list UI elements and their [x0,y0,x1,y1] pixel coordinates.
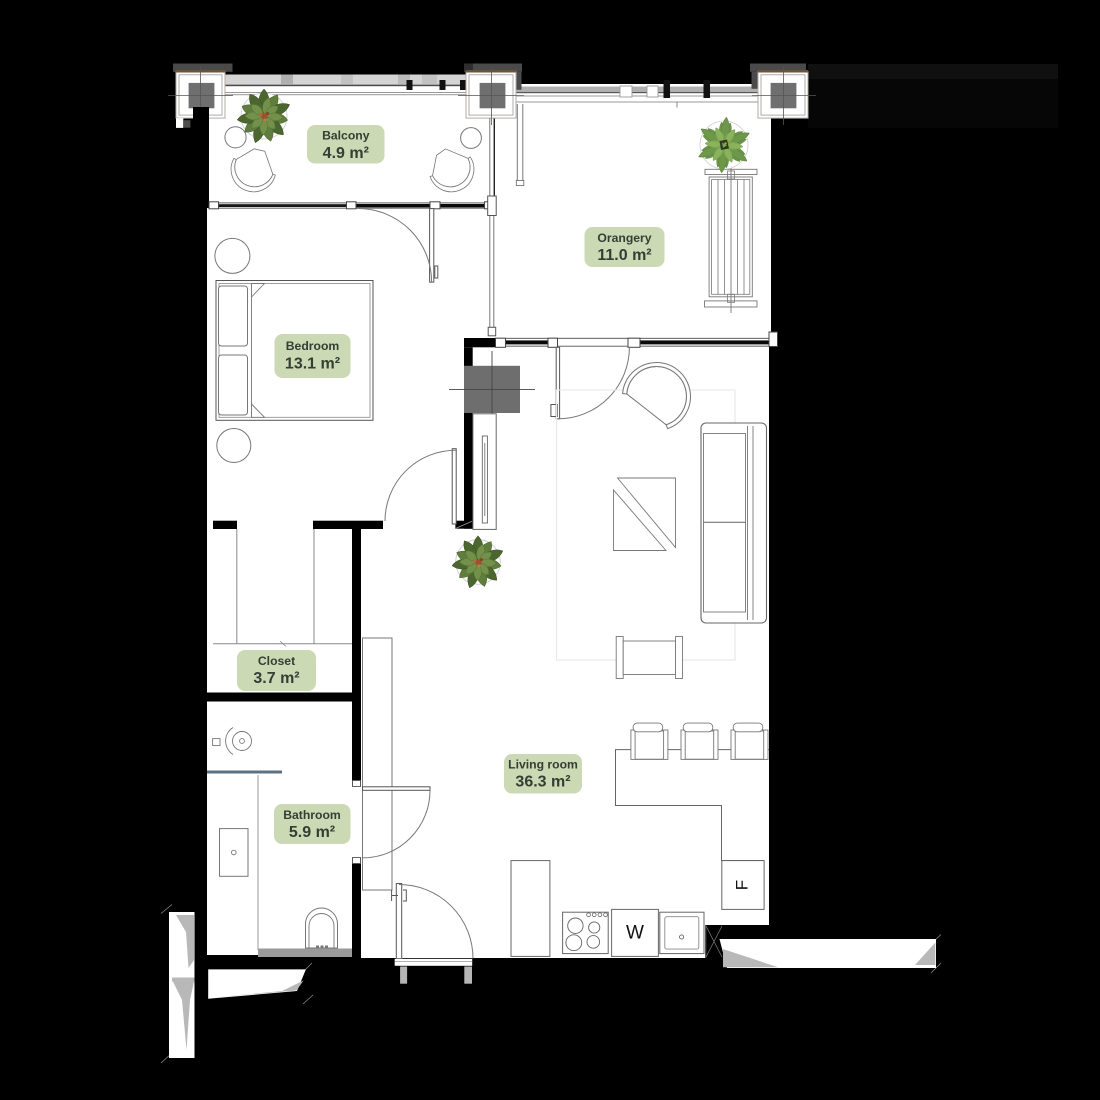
svg-text:36.3 m²: 36.3 m² [515,774,570,791]
svg-text:Bedroom: Bedroom [286,339,340,353]
svg-text:4.9 m²: 4.9 m² [323,145,369,162]
svg-text:Orangery: Orangery [597,231,651,245]
svg-text:11.0 m²: 11.0 m² [597,247,651,264]
svg-text:Balcony: Balcony [322,129,370,143]
svg-text:13.1 m²: 13.1 m² [285,356,340,373]
svg-text:W: W [626,922,644,943]
svg-text:3.7 m²: 3.7 m² [253,670,299,687]
svg-text:5.9 m²: 5.9 m² [289,824,335,841]
svg-text:F: F [733,880,752,890]
svg-text:Closet: Closet [258,654,295,668]
svg-text:Bathroom: Bathroom [283,808,341,822]
svg-text:Living room: Living room [508,758,578,772]
